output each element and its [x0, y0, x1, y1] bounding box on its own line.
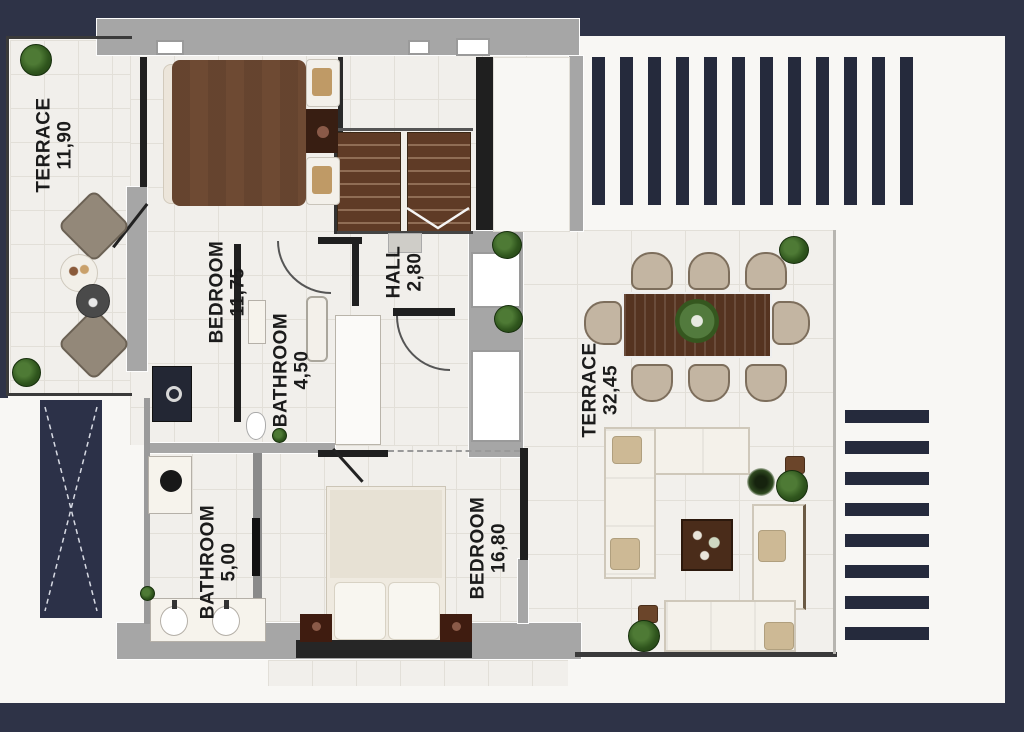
stair-flight-left — [337, 132, 401, 232]
terrace-left-wall-bottom — [8, 393, 132, 396]
pergola-slats-top — [592, 57, 913, 205]
wall-terrace-bedroom — [140, 57, 147, 187]
plant — [494, 305, 523, 333]
room-label-bedroom-top: BEDROOM 11,75 — [207, 241, 248, 344]
plant-starburst — [747, 468, 775, 496]
sofa-cushion — [610, 538, 640, 570]
floor-plan: TERRACE 11,90 BEDROOM 11,75 HALL 2,80 BA… — [0, 0, 1024, 732]
void-shaft — [40, 400, 102, 618]
room-name: BATHROOM — [198, 505, 219, 619]
sofa-cushion — [612, 436, 642, 464]
dining-chair — [584, 301, 622, 345]
wall-bedroom2-top — [318, 450, 388, 457]
plant — [492, 231, 522, 259]
green-pouf — [628, 620, 660, 652]
plant — [776, 470, 808, 502]
coffee-table — [681, 519, 733, 571]
dining-chair — [631, 252, 673, 290]
plant — [12, 358, 41, 387]
terrace-left-wall-left — [6, 36, 9, 396]
room-name: BEDROOM — [468, 497, 489, 600]
sofa-cushion — [764, 622, 794, 650]
bed-blanket — [330, 490, 442, 578]
pergola-slats-side — [845, 410, 929, 640]
wall-bathroom-divider — [144, 442, 336, 454]
room-label-terrace-right: TERRACE 32,45 — [580, 342, 621, 437]
room-area: 32,45 — [601, 342, 622, 437]
room-name: TERRACE — [580, 342, 601, 437]
room-name: BEDROOM — [207, 241, 228, 344]
dining-chair — [772, 301, 810, 345]
hidden-edge-dashed — [388, 450, 520, 452]
sofa-cushion — [758, 530, 786, 562]
wall-bedroom-right-low — [517, 558, 529, 624]
nightstand-lamp-icon — [312, 622, 321, 631]
bed-pillow — [388, 582, 440, 640]
dining-chair — [688, 252, 730, 290]
wall-stair-right — [568, 55, 584, 232]
dining-chair — [688, 364, 730, 402]
terrace-apron-floor — [268, 660, 568, 686]
room-label-bathroom-bottom: BATHROOM 5,00 — [198, 505, 239, 619]
wall-bathroom-right-up — [352, 244, 359, 306]
window-top-1 — [156, 40, 184, 55]
bed-pillow — [334, 582, 386, 640]
window-top-3 — [456, 38, 490, 56]
room-area: 11,75 — [228, 241, 249, 344]
room-name: TERRACE — [34, 97, 55, 192]
bed-cushion — [312, 166, 332, 194]
room-area: 5,00 — [219, 505, 240, 619]
wall-hall-door-side — [393, 308, 455, 316]
closet — [335, 315, 381, 445]
room-area: 2,80 — [405, 246, 426, 299]
room-label-terrace-left: TERRACE 11,90 — [34, 97, 75, 192]
sink — [160, 606, 188, 636]
washing-machine-drum-icon — [166, 386, 182, 402]
stair-direction-arrow-icon — [405, 206, 471, 232]
shower-screen — [252, 518, 260, 576]
table-centerpiece-plant — [675, 299, 719, 343]
plant-small — [272, 428, 287, 443]
lightwell — [493, 57, 570, 232]
dining-chair — [745, 364, 787, 402]
round-table-dark — [76, 284, 110, 318]
room-label-bedroom-bottom: BEDROOM 16,80 — [468, 497, 509, 600]
dining-chair — [631, 364, 673, 402]
terrace-left-wall-top — [8, 36, 132, 39]
bed-tray-decor — [317, 126, 329, 138]
stair-top-edge — [337, 128, 473, 131]
appliance-drum-icon — [160, 470, 182, 492]
window-hall-1 — [471, 252, 521, 308]
room-label-hall: HALL 2,80 — [384, 246, 425, 299]
room-area: 4,50 — [292, 313, 313, 427]
room-name: BATHROOM — [271, 313, 292, 427]
window-hall-2 — [471, 350, 521, 442]
wall-bedroom2-right — [520, 448, 528, 560]
plant-small — [140, 586, 155, 601]
room-name: HALL — [384, 246, 405, 299]
window-top-2 — [408, 40, 430, 55]
plant — [779, 236, 809, 264]
terrace-right-wall-right — [833, 230, 836, 654]
nightstand-lamp-icon — [452, 622, 461, 631]
toilet — [246, 412, 266, 440]
terrace-right-wall-bottom — [575, 652, 837, 657]
room-label-bathroom-top: BATHROOM 4,50 — [271, 313, 312, 427]
bathroom-vanity — [248, 300, 266, 344]
tap-icon — [172, 600, 177, 609]
bed-headboard — [296, 640, 472, 658]
room-area: 16,80 — [489, 497, 510, 600]
plant — [20, 44, 52, 76]
room-area: 11,90 — [55, 97, 76, 192]
wall-stairwell — [476, 57, 493, 230]
bed-cushion — [312, 68, 332, 96]
double-bed-duvet — [172, 60, 306, 206]
